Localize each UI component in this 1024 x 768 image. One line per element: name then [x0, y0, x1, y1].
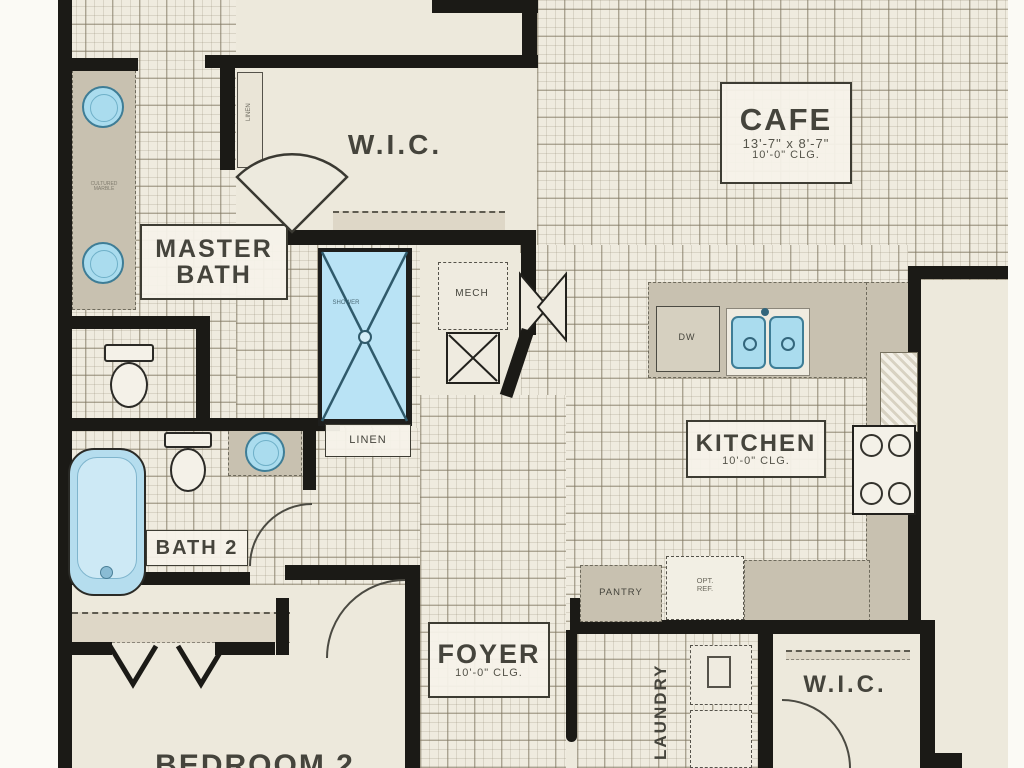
floor-wic-bottom — [773, 646, 920, 768]
cafe-name: CAFE — [740, 104, 832, 137]
pantry: PANTRY — [580, 565, 662, 622]
wall — [58, 642, 112, 655]
wall — [276, 598, 289, 655]
wall — [288, 230, 536, 245]
master-sink-2-bowl — [90, 250, 118, 278]
wall — [570, 620, 935, 634]
washer — [690, 710, 752, 768]
range-burner — [888, 434, 911, 457]
wall — [58, 58, 138, 71]
wall — [58, 316, 210, 329]
wall — [908, 266, 1008, 279]
window-hatch — [880, 352, 918, 432]
pantry-label: PANTRY — [581, 588, 661, 598]
foyer-name: FOYER — [437, 640, 540, 668]
bath2-sink-bowl — [253, 440, 279, 466]
wall — [920, 753, 962, 768]
bath2-toilet-bowl — [170, 448, 206, 492]
cafe-clg: 10'-0" CLG. — [752, 150, 820, 162]
vanity-note-line2: MARBLE — [76, 187, 132, 192]
opt-ref-line2: REF. — [667, 585, 743, 593]
linen-cabinet-label: LINEN — [246, 103, 252, 121]
dishwasher-label: DW — [657, 333, 717, 342]
bathtub-drain — [100, 566, 113, 579]
cafe-dims: 13'-7" x 8'-7" — [743, 137, 830, 151]
wic-bottom-label: W.I.C. — [790, 672, 900, 697]
kitchen-sink-drain-left — [743, 337, 757, 351]
range-burner — [860, 482, 883, 505]
wic-top-label: W.I.C. — [330, 130, 460, 159]
dishwasher: DW — [656, 306, 720, 372]
vanity-note: CULTURED MARBLE — [76, 182, 132, 193]
bath2-name: BATH 2 — [156, 538, 239, 559]
wall — [303, 418, 316, 490]
opt-refrigerator: OPT. REF. — [666, 556, 744, 620]
range-burner — [860, 434, 883, 457]
wall — [522, 0, 537, 68]
kitchen-faucet — [761, 308, 769, 316]
opt-ref-label: OPT. REF. — [667, 577, 743, 593]
master-sink-1-bowl — [90, 94, 118, 122]
linen-cabinet: LINEN — [237, 72, 263, 168]
foyer-label: FOYER 10'-0" CLG. — [428, 622, 550, 698]
kitchen-clg: 10'-0" CLG. — [722, 456, 790, 468]
wall — [521, 230, 536, 335]
wall — [58, 418, 340, 431]
wall — [566, 630, 577, 742]
foyer-clg: 10'-0" CLG. — [455, 668, 523, 680]
wall — [205, 55, 538, 68]
master-toilet-tank — [104, 344, 154, 362]
water-heater-box — [446, 332, 500, 384]
wic-bottom-shelf — [786, 650, 910, 660]
master-bath-line1: MASTER — [155, 236, 273, 262]
kitchen-name: KITCHEN — [696, 431, 817, 456]
bath2-label: BATH 2 — [146, 530, 248, 566]
laundry-label: LAUNDRY — [652, 640, 670, 760]
dryer — [690, 645, 752, 705]
wall — [405, 580, 420, 768]
wall — [215, 642, 275, 655]
master-bath-line2: BATH — [176, 262, 252, 288]
cafe-label: CAFE 13'-7" x 8'-7" 10'-0" CLG. — [720, 82, 852, 184]
wall — [758, 632, 773, 768]
mech-label: MECH — [439, 289, 505, 300]
shower — [318, 248, 412, 426]
kitchen-counter-bottom — [744, 560, 870, 622]
floor-plan: LINEN CULTURED MARBLE SHOWER LINEN MECH … — [0, 0, 1024, 768]
shower-label: SHOWER — [326, 300, 366, 306]
bathtub-inner — [77, 457, 137, 579]
linen-closet-label: LINEN — [349, 435, 386, 447]
linen-closet: LINEN — [325, 424, 411, 457]
kitchen-label: KITCHEN 10'-0" CLG. — [686, 420, 826, 478]
tile-floor-foyer — [420, 395, 566, 768]
kitchen-sink-drain-right — [781, 337, 795, 351]
bedroom2-label: BEDROOM 2 — [135, 750, 375, 768]
range-burner — [888, 482, 911, 505]
mech-closet: MECH — [438, 262, 508, 330]
wic-top-shelf — [333, 211, 505, 232]
dryer-door — [707, 656, 731, 688]
bedroom-closet-shelf — [72, 612, 290, 643]
wall — [285, 565, 420, 580]
master-bath-label: MASTER BATH — [140, 224, 288, 300]
wall — [920, 632, 935, 768]
bath2-toilet-tank — [164, 432, 212, 448]
wall — [196, 316, 210, 420]
wall — [220, 55, 235, 170]
master-toilet-bowl — [110, 362, 148, 408]
